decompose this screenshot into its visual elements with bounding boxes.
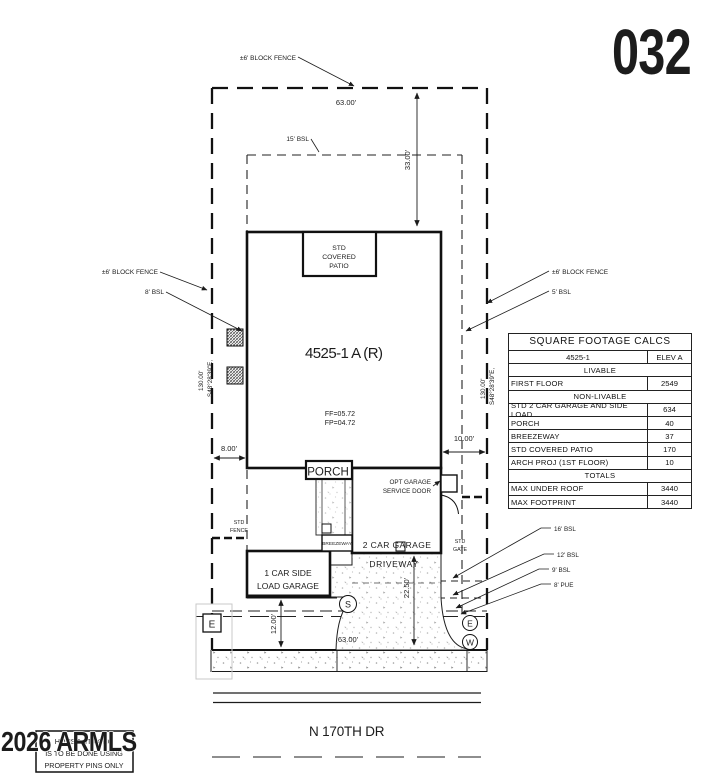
table-row-label: ARCH PROJ (1ST FLOOR) — [509, 457, 647, 469]
bsl9-label: 9' BSL — [552, 567, 571, 574]
gate-swing-arc — [441, 495, 459, 514]
leader-bsl12 — [453, 554, 554, 595]
table-row: MAX UNDER ROOF 3440 — [509, 483, 691, 496]
opt-door-label-1: OPT GARAGE — [389, 479, 431, 486]
table-row-value: 3440 — [647, 496, 691, 508]
patio-label-3: PATIO — [329, 263, 348, 270]
electric-box-label: E — [209, 620, 216, 631]
opt-door-label-2: SERVICE DOOR — [383, 488, 432, 495]
table-row: BREEZEWAY 37 — [509, 430, 691, 443]
porch-label: PORCH — [307, 467, 349, 479]
table-row: MAX FOOTPRINT 3440 — [509, 496, 691, 508]
dim-10: 10.00' — [454, 434, 475, 443]
table-row-value: 37 — [647, 430, 691, 442]
fence-small-label-2: FENCE — [230, 528, 248, 534]
leader-bsl8 — [166, 292, 242, 331]
dim-front-width: 63.00' — [338, 635, 359, 644]
garage2-label: 2 CAR GARAGE — [363, 540, 432, 550]
dim-33: 33.00' — [403, 149, 412, 170]
leader-bsl15 — [311, 139, 319, 152]
table-row-label: PORCH — [509, 417, 647, 429]
table-elev: ELEV A — [647, 351, 691, 363]
table-row-label: MAX FOOTPRINT — [509, 496, 647, 508]
bearing-left-1: S48°28'39"E, — [206, 360, 214, 397]
fence-left-label: ±6' BLOCK FENCE — [102, 269, 159, 276]
table-row-value: 10 — [647, 457, 691, 469]
pue8-label: 8' PUE — [554, 582, 573, 589]
sewer-marker-label: S — [345, 600, 351, 610]
table-title: SQUARE FOOTAGE CALCS — [509, 334, 691, 351]
leader-fence-right — [487, 271, 549, 303]
table-subheader-row: 4525-1 ELEV A — [509, 351, 691, 364]
table-row-value: 2549 — [647, 377, 691, 389]
ac-unit-1 — [227, 329, 243, 346]
bsl12-label: 12' BSL — [557, 552, 579, 559]
table-row-value: 40 — [647, 417, 691, 429]
leader-fence-top — [298, 57, 354, 86]
dim-rear-width: 63.00' — [336, 98, 357, 107]
table-row-value: 3440 — [647, 483, 691, 495]
patio-label-1: STD — [332, 245, 346, 252]
table-row-label: STD 2 CAR GARAGE AND SIDE LOAD — [509, 404, 647, 416]
service-door-stoop — [441, 475, 457, 492]
table-model: 4525-1 — [509, 351, 647, 363]
bearing-left-2: 130.00' — [198, 371, 205, 391]
table-row: STD COVERED PATIO 170 — [509, 443, 691, 456]
model-label: 4525-1 A (R) — [305, 345, 383, 362]
dim-8: 8.00' — [221, 444, 238, 453]
street-name: N 170TH DR — [309, 724, 385, 739]
garage1-label-2: LOAD GARAGE — [257, 581, 319, 591]
table-section-livable: LIVABLE — [509, 364, 691, 377]
dim-225: 22.50' — [402, 577, 411, 598]
ac-unit-2 — [227, 367, 243, 384]
site-plan-page: N 170TH DR DRIVEWAY — [0, 0, 702, 774]
note-line-3: PROPERTY PINS ONLY — [44, 761, 123, 770]
bsl8-label: 8' BSL — [145, 289, 164, 296]
leader-fence-left — [160, 272, 207, 290]
table-row: PORCH 40 — [509, 417, 691, 430]
armls-watermark: 2026 ARMLS — [1, 727, 137, 757]
bsl5-label: 5' BSL — [552, 289, 571, 296]
driveway-label: DRIVEWAY — [369, 559, 418, 569]
table-row-value: 634 — [647, 404, 691, 416]
breezeway-label: BREEZEWAY — [322, 541, 352, 547]
table-section-totals: TOTALS — [509, 470, 691, 483]
table-row-label: MAX UNDER ROOF — [509, 483, 647, 495]
square-footage-table: SQUARE FOOTAGE CALCS 4525-1 ELEV A LIVAB… — [508, 333, 692, 509]
table-row-label: STD COVERED PATIO — [509, 443, 647, 455]
landscape-strip — [212, 651, 487, 671]
bearing-right-2: 130.00' — [480, 379, 487, 399]
east-marker-label: E — [467, 619, 473, 629]
walkway-texture — [316, 479, 352, 535]
table-row-value: 170 — [647, 443, 691, 455]
table-row: ARCH PROJ (1ST FLOOR) 10 — [509, 457, 691, 470]
bsl16-label: 16' BSL — [554, 526, 576, 533]
fence-small-label-1: STD — [234, 520, 245, 526]
leader-bsl5 — [466, 291, 549, 331]
gate-label-2: GATE — [453, 547, 467, 553]
garage1-label-1: 1 CAR SIDE — [264, 568, 312, 578]
table-row: STD 2 CAR GARAGE AND SIDE LOAD 634 — [509, 404, 691, 417]
water-marker-label: W — [466, 638, 474, 648]
street-frontage: N 170TH DR — [211, 650, 487, 757]
bearing-right-1: S48°28'39"E, — [488, 368, 496, 405]
ff-label: FF=05.72 — [325, 411, 355, 418]
bsl15-label: 15' BSL — [286, 136, 309, 143]
leader-bsl9 — [456, 569, 549, 608]
fence-right-label: ±6' BLOCK FENCE — [552, 269, 609, 276]
fence-top-label: ±6' BLOCK FENCE — [240, 55, 297, 62]
gate-label-1: STD — [455, 539, 466, 545]
sheet-number: 032 — [612, 18, 691, 89]
fp-label: FP=04.72 — [325, 420, 356, 427]
dim-12: 12.00' — [269, 613, 278, 634]
table-row: FIRST FLOOR 2549 — [509, 377, 691, 390]
patio-label-2: COVERED — [322, 254, 356, 261]
table-row-label: BREEZEWAY — [509, 430, 647, 442]
column-detail-1 — [322, 524, 331, 533]
table-row-label: FIRST FLOOR — [509, 377, 647, 389]
